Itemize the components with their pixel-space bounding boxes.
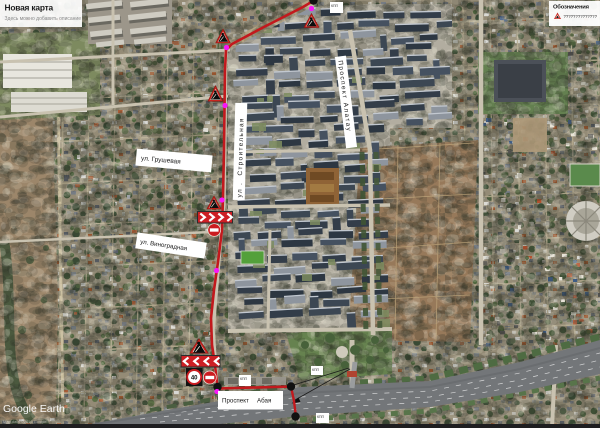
svg-text:КПП: КПП — [317, 415, 325, 419]
svg-text:40: 40 — [191, 375, 198, 381]
svg-text:Новая карта: Новая карта — [5, 3, 54, 13]
svg-text:??????????????: ?????????????? — [564, 14, 598, 19]
svg-text:Map data ©2016 Google: Map data ©2016 Google — [3, 419, 47, 424]
svg-text:Обозначения: Обозначения — [553, 4, 589, 11]
svg-text:Проспект: Проспект — [222, 398, 249, 405]
svg-text:Абая: Абая — [257, 398, 271, 405]
svg-text:КПП: КПП — [331, 4, 339, 8]
svg-text:Google Earth: Google Earth — [3, 403, 65, 415]
svg-text:Здесь можно добавить описание: Здесь можно добавить описание — [5, 16, 82, 22]
svg-text:КПП: КПП — [312, 368, 320, 372]
svg-text:КПП: КПП — [240, 377, 248, 381]
